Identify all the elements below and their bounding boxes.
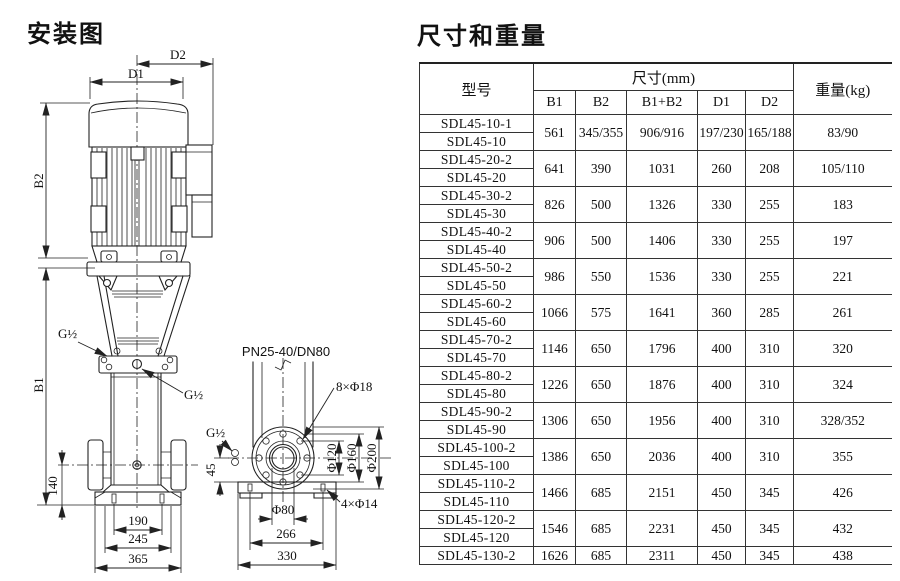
dim-d1: D1 bbox=[90, 66, 183, 99]
model-cell: SDL45-20 bbox=[420, 169, 534, 187]
size-cell: 255 bbox=[746, 259, 794, 295]
size-cell: 400 bbox=[698, 331, 746, 367]
model-cell: SDL45-90-2 bbox=[420, 403, 534, 421]
weight-cell: 355 bbox=[794, 439, 892, 475]
size-cell: 575 bbox=[576, 295, 627, 331]
size-cell: 390 bbox=[576, 151, 627, 187]
model-cell: SDL45-70 bbox=[420, 349, 534, 367]
callout-g-half-left: G½ bbox=[58, 326, 107, 356]
size-cell: 345/355 bbox=[576, 115, 627, 151]
size-cell: 360 bbox=[698, 295, 746, 331]
size-cell: 285 bbox=[746, 295, 794, 331]
size-cell: 1466 bbox=[534, 475, 576, 511]
model-cell: SDL45-20-2 bbox=[420, 151, 534, 169]
dim-label-245: 245 bbox=[128, 531, 148, 546]
header-b1b2: B1+B2 bbox=[627, 91, 698, 115]
header-d1: D1 bbox=[698, 91, 746, 115]
header-b2: B2 bbox=[576, 91, 627, 115]
size-cell: 1146 bbox=[534, 331, 576, 367]
size-cell: 550 bbox=[576, 259, 627, 295]
table-row: SDL45-80-212266501876400310324 bbox=[420, 367, 892, 385]
size-cell: 1066 bbox=[534, 295, 576, 331]
model-cell: SDL45-130-2 bbox=[420, 547, 534, 565]
header-model: 型号 bbox=[420, 63, 534, 115]
size-cell: 500 bbox=[576, 223, 627, 259]
size-cell: 2231 bbox=[627, 511, 698, 547]
size-cell: 330 bbox=[698, 259, 746, 295]
weight-cell: 320 bbox=[794, 331, 892, 367]
size-cell: 1226 bbox=[534, 367, 576, 403]
table-row: SDL45-40-29065001406330255197 bbox=[420, 223, 892, 241]
bolt-holes-4-label: 4×Φ14 bbox=[341, 496, 378, 511]
dim-label-d2: D2 bbox=[170, 47, 186, 62]
table-row: SDL45-130-216266852311450345438 bbox=[420, 547, 892, 565]
size-cell: 1796 bbox=[627, 331, 698, 367]
size-cell: 450 bbox=[698, 511, 746, 547]
header-d2: D2 bbox=[746, 91, 794, 115]
model-cell: SDL45-30-2 bbox=[420, 187, 534, 205]
dim-label-190: 190 bbox=[128, 513, 148, 528]
size-cell: 650 bbox=[576, 403, 627, 439]
size-cell: 450 bbox=[698, 547, 746, 565]
model-cell: SDL45-30 bbox=[420, 205, 534, 223]
table-row: SDL45-30-28265001326330255183 bbox=[420, 187, 892, 205]
weight-cell: 438 bbox=[794, 547, 892, 565]
size-cell: 906 bbox=[534, 223, 576, 259]
size-cell: 2036 bbox=[627, 439, 698, 475]
size-cell: 330 bbox=[698, 223, 746, 259]
flange-spec-label: PN25-40/DN80 bbox=[242, 344, 330, 359]
g-half-label: G½ bbox=[184, 387, 203, 402]
dim-b1: B1 bbox=[31, 268, 95, 505]
dimensions-table-body: SDL45-10-1561345/355906/916197/230165/18… bbox=[420, 115, 892, 565]
model-cell: SDL45-60 bbox=[420, 313, 534, 331]
pump-front-view: D1 D2 B2 B1 bbox=[31, 47, 213, 573]
model-cell: SDL45-90 bbox=[420, 421, 534, 439]
weight-cell: 83/90 bbox=[794, 115, 892, 151]
weight-cell: 183 bbox=[794, 187, 892, 223]
dim-label-266: 266 bbox=[276, 526, 296, 541]
catalog-page: 安装图 尺寸和重量 bbox=[0, 0, 900, 581]
model-cell: SDL45-100 bbox=[420, 457, 534, 475]
size-cell: 1876 bbox=[627, 367, 698, 403]
size-cell: 1956 bbox=[627, 403, 698, 439]
size-cell: 1386 bbox=[534, 439, 576, 475]
header-size-group: 尺寸(mm) bbox=[534, 63, 794, 91]
dimensions-table: 型号 尺寸(mm) 重量(kg) B1 B2 B1+B2 D1 D2 SDL45… bbox=[419, 62, 892, 565]
model-cell: SDL45-110-2 bbox=[420, 475, 534, 493]
size-cell: 685 bbox=[576, 511, 627, 547]
dim-label-330: 330 bbox=[277, 548, 297, 563]
model-cell: SDL45-50-2 bbox=[420, 259, 534, 277]
dim-label-phi120: Φ120 bbox=[324, 443, 339, 472]
dimensions-weight-title: 尺寸和重量 bbox=[417, 16, 547, 51]
model-cell: SDL45-40-2 bbox=[420, 223, 534, 241]
weight-cell: 105/110 bbox=[794, 151, 892, 187]
weight-cell: 432 bbox=[794, 511, 892, 547]
bolt-holes-8-label: 8×Φ18 bbox=[336, 379, 372, 394]
size-cell: 826 bbox=[534, 187, 576, 223]
size-cell: 165/188 bbox=[746, 115, 794, 151]
size-cell: 345 bbox=[746, 475, 794, 511]
dim-label-phi160: Φ160 bbox=[344, 443, 359, 472]
size-cell: 500 bbox=[576, 187, 627, 223]
dim-label-phi200: Φ200 bbox=[364, 443, 379, 472]
dim-label-phi80: Φ80 bbox=[272, 502, 295, 517]
weight-cell: 197 bbox=[794, 223, 892, 259]
size-cell: 1641 bbox=[627, 295, 698, 331]
weight-cell: 328/352 bbox=[794, 403, 892, 439]
g-half-label: G½ bbox=[206, 425, 225, 440]
model-cell: SDL45-70-2 bbox=[420, 331, 534, 349]
model-cell: SDL45-10-1 bbox=[420, 115, 534, 133]
dim-label-365: 365 bbox=[128, 551, 148, 566]
callout-g-half-center: G½ bbox=[142, 369, 203, 402]
table-row: SDL45-110-214666852151450345426 bbox=[420, 475, 892, 493]
size-cell: 685 bbox=[576, 475, 627, 511]
size-cell: 650 bbox=[576, 331, 627, 367]
size-cell: 561 bbox=[534, 115, 576, 151]
size-cell: 650 bbox=[576, 439, 627, 475]
table-row: SDL45-10-1561345/355906/916197/230165/18… bbox=[420, 115, 892, 133]
size-cell: 2151 bbox=[627, 475, 698, 511]
size-cell: 400 bbox=[698, 367, 746, 403]
size-cell: 450 bbox=[698, 475, 746, 511]
dim-140: 140 bbox=[45, 450, 62, 520]
dim-label-b1: B1 bbox=[31, 377, 46, 392]
size-cell: 650 bbox=[576, 367, 627, 403]
size-cell: 310 bbox=[746, 367, 794, 403]
callout-g-half-port: G½ bbox=[206, 425, 232, 451]
table-row: SDL45-100-213866502036400310355 bbox=[420, 439, 892, 457]
header-b1: B1 bbox=[534, 91, 576, 115]
size-cell: 208 bbox=[746, 151, 794, 187]
table-row: SDL45-60-210665751641360285261 bbox=[420, 295, 892, 313]
g-half-label: G½ bbox=[58, 326, 77, 341]
pump-flange-view: PN25-40/DN80 bbox=[203, 344, 392, 570]
dim-label-b2: B2 bbox=[31, 173, 46, 188]
weight-cell: 261 bbox=[794, 295, 892, 331]
size-cell: 345 bbox=[746, 547, 794, 565]
model-cell: SDL45-10 bbox=[420, 133, 534, 151]
size-cell: 400 bbox=[698, 403, 746, 439]
dim-266: 266 bbox=[250, 492, 323, 550]
dim-label-45: 45 bbox=[203, 464, 218, 477]
model-cell: SDL45-80-2 bbox=[420, 367, 534, 385]
size-cell: 1306 bbox=[534, 403, 576, 439]
motor-junction-box bbox=[186, 145, 212, 237]
size-cell: 1546 bbox=[534, 511, 576, 547]
size-cell: 1536 bbox=[627, 259, 698, 295]
weight-cell: 221 bbox=[794, 259, 892, 295]
model-cell: SDL45-50 bbox=[420, 277, 534, 295]
table-row: SDL45-20-26413901031260208105/110 bbox=[420, 151, 892, 169]
table-row: SDL45-120-215466852231450345432 bbox=[420, 511, 892, 529]
size-cell: 906/916 bbox=[627, 115, 698, 151]
size-cell: 685 bbox=[576, 547, 627, 565]
table-row: SDL45-90-213066501956400310328/352 bbox=[420, 403, 892, 421]
size-cell: 641 bbox=[534, 151, 576, 187]
pump-installation-drawing: D1 D2 B2 B1 bbox=[0, 0, 420, 581]
model-cell: SDL45-120-2 bbox=[420, 511, 534, 529]
model-cell: SDL45-110 bbox=[420, 493, 534, 511]
model-cell: SDL45-40 bbox=[420, 241, 534, 259]
size-cell: 1326 bbox=[627, 187, 698, 223]
model-cell: SDL45-60-2 bbox=[420, 295, 534, 313]
table-row: SDL45-50-29865501536330255221 bbox=[420, 259, 892, 277]
dim-45: 45 bbox=[203, 444, 238, 496]
table-row: SDL45-70-211466501796400310320 bbox=[420, 331, 892, 349]
model-cell: SDL45-100-2 bbox=[420, 439, 534, 457]
size-cell: 260 bbox=[698, 151, 746, 187]
pump-lantern bbox=[97, 276, 190, 356]
dim-label-140: 140 bbox=[45, 476, 60, 496]
size-cell: 255 bbox=[746, 223, 794, 259]
pump-base bbox=[95, 485, 181, 505]
size-cell: 197/230 bbox=[698, 115, 746, 151]
size-cell: 330 bbox=[698, 187, 746, 223]
dimensions-table-wrap: 型号 尺寸(mm) 重量(kg) B1 B2 B1+B2 D1 D2 SDL45… bbox=[419, 62, 892, 565]
weight-cell: 426 bbox=[794, 475, 892, 511]
dim-d2: D2 bbox=[137, 47, 213, 145]
size-cell: 1626 bbox=[534, 547, 576, 565]
pump-head bbox=[99, 356, 177, 373]
size-cell: 310 bbox=[746, 403, 794, 439]
header-weight: 重量(kg) bbox=[794, 63, 892, 115]
model-cell: SDL45-80 bbox=[420, 385, 534, 403]
size-cell: 400 bbox=[698, 439, 746, 475]
weight-cell: 324 bbox=[794, 367, 892, 403]
size-cell: 310 bbox=[746, 439, 794, 475]
model-cell: SDL45-120 bbox=[420, 529, 534, 547]
dim-label-d1: D1 bbox=[128, 66, 144, 81]
size-cell: 345 bbox=[746, 511, 794, 547]
size-cell: 255 bbox=[746, 187, 794, 223]
motor-fins bbox=[97, 148, 181, 246]
size-cell: 1406 bbox=[627, 223, 698, 259]
size-cell: 2311 bbox=[627, 547, 698, 565]
size-cell: 1031 bbox=[627, 151, 698, 187]
dim-b2: B2 bbox=[31, 103, 90, 258]
size-cell: 310 bbox=[746, 331, 794, 367]
size-cell: 986 bbox=[534, 259, 576, 295]
